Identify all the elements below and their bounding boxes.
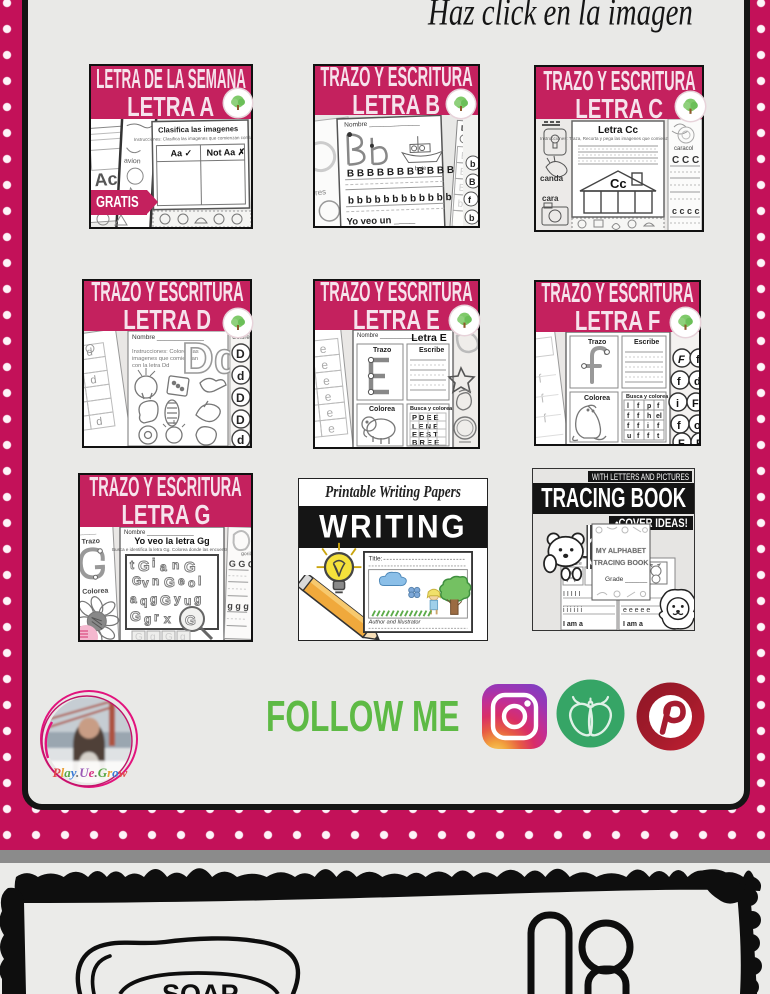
svg-text:g: g xyxy=(150,592,157,606)
svg-text:u: u xyxy=(184,594,191,608)
svg-text:D: D xyxy=(236,413,245,427)
svg-text:i: i xyxy=(152,556,155,570)
svg-text:Letra Cc: Letra Cc xyxy=(598,125,638,136)
svg-text:G: G xyxy=(185,612,196,628)
svg-text:g: g xyxy=(144,612,151,626)
svg-text:a: a xyxy=(160,560,167,574)
svg-text:G: G xyxy=(165,632,173,642)
svg-text:D: D xyxy=(236,391,245,405)
svg-text:r: r xyxy=(154,610,159,624)
svg-text:G G G G: G G G G xyxy=(229,559,251,570)
svg-text:G: G xyxy=(130,608,141,624)
svg-text:F: F xyxy=(678,438,685,446)
svg-text:Grade ______: Grade ______ xyxy=(605,576,647,583)
svg-text:res: res xyxy=(315,187,327,197)
svg-text:Trazo: Trazo xyxy=(373,347,391,354)
svg-text:con la letra Dd: con la letra Dd xyxy=(132,363,169,369)
svg-text:F: F xyxy=(692,398,699,410)
svg-text:G: G xyxy=(184,559,196,576)
svg-text:F: F xyxy=(696,438,699,446)
svg-text:g: g xyxy=(150,632,156,642)
svg-text:h: h xyxy=(647,413,651,420)
svg-text:TRACING BOOK: TRACING BOOK xyxy=(594,560,649,567)
svg-text:Title:: Title: xyxy=(369,555,383,562)
svg-text:n: n xyxy=(152,574,159,588)
svg-text:Trazo: Trazo xyxy=(81,538,100,546)
svg-text:l: l xyxy=(198,574,201,588)
svg-text:canda: canda xyxy=(540,174,564,183)
svg-text:B: B xyxy=(469,177,476,187)
svg-text:C C C: C C C xyxy=(672,155,699,166)
svg-text:Clasifica las imagenes: Clasifica las imagenes xyxy=(158,124,238,134)
svg-text:caracol: caracol xyxy=(674,146,693,152)
svg-text:avion: avion xyxy=(124,158,141,166)
svg-text:f: f xyxy=(677,420,681,432)
svg-text:Ac: Ac xyxy=(94,169,118,191)
svg-text:Escribe: Escribe xyxy=(634,339,659,346)
svg-text:el: el xyxy=(656,413,662,420)
svg-text:G: G xyxy=(160,592,171,608)
svg-text:D: D xyxy=(236,347,245,361)
svg-text:o: o xyxy=(188,576,195,590)
svg-text:a: a xyxy=(130,592,137,606)
svg-text:G: G xyxy=(164,574,175,590)
svg-text:i: i xyxy=(647,423,649,430)
svg-text:F: F xyxy=(678,354,685,366)
svg-text:b: b xyxy=(470,159,476,169)
svg-text:SOAP: SOAP xyxy=(162,979,239,994)
svg-text:c c c c: c c c c xyxy=(672,206,700,216)
svg-text:o: o xyxy=(694,420,699,432)
svg-text:B R E E: B R E E xyxy=(412,438,439,447)
svg-text:n: n xyxy=(172,558,179,572)
svg-text:Yo veo la letra Gg: Yo veo la letra Gg xyxy=(134,536,209,546)
svg-text:gorila: gorila xyxy=(241,551,251,557)
svg-text:q: q xyxy=(140,594,147,608)
svg-text:e e e e e: e e e e e xyxy=(623,607,650,614)
svg-text:v: v xyxy=(142,576,149,590)
svg-text:i: i xyxy=(676,398,679,410)
svg-text:Author and Illustrator: Author and Illustrator xyxy=(368,620,422,626)
svg-text:g: g xyxy=(180,632,186,642)
svg-text:d: d xyxy=(237,433,244,446)
svg-text:Colorea: Colorea xyxy=(584,395,610,402)
svg-text:I am a: I am a xyxy=(563,621,583,628)
svg-text:Not Aa ✗: Not Aa ✗ xyxy=(206,147,245,158)
svg-text:G: G xyxy=(132,574,141,588)
svg-text:G: G xyxy=(135,632,143,642)
svg-text:f: f xyxy=(696,354,699,366)
svg-text:MY ALPHABET: MY ALPHABET xyxy=(596,548,647,555)
svg-text:Busca y colorea: Busca y colorea xyxy=(410,406,453,412)
svg-text:Escribe: Escribe xyxy=(419,347,444,354)
svg-text:Colorea: Colorea xyxy=(82,588,108,596)
svg-text:Busca e identifica la letra Gg: Busca e identifica la letra Gg. Colorea … xyxy=(112,547,233,552)
svg-text:cara: cara xyxy=(542,194,559,203)
svg-text:Play.Ue.Grow: Play.Ue.Grow xyxy=(53,765,128,780)
svg-text:x: x xyxy=(164,612,171,626)
svg-text:g: g xyxy=(194,592,201,606)
svg-text:i i i i i i: i i i i i i xyxy=(563,607,583,614)
svg-text:Colorea: Colorea xyxy=(369,406,395,413)
svg-text:I I I I I: I I I I I xyxy=(563,591,581,598)
svg-text:d: d xyxy=(237,369,244,383)
svg-text:g g g g: g g g g xyxy=(227,601,251,612)
svg-text:b: b xyxy=(469,213,475,223)
svg-text:y: y xyxy=(174,592,181,606)
svg-text:Aa ✓: Aa ✓ xyxy=(170,148,192,158)
svg-text:Trazo: Trazo xyxy=(588,339,606,346)
svg-text:e: e xyxy=(178,574,185,588)
svg-text:Busca y colorea: Busca y colorea xyxy=(626,394,669,400)
svg-text:G: G xyxy=(138,558,150,575)
svg-text:Nombre ___________: Nombre ___________ xyxy=(357,333,417,339)
svg-text:Cc: Cc xyxy=(610,176,627,191)
svg-text:Letra E: Letra E xyxy=(411,332,447,344)
svg-text:I am a: I am a xyxy=(623,621,643,628)
svg-text:d: d xyxy=(694,376,699,388)
svg-text:u: u xyxy=(627,433,631,440)
svg-text:f: f xyxy=(677,376,681,388)
svg-text:l: l xyxy=(627,403,629,410)
svg-text:p: p xyxy=(647,403,651,410)
svg-text:t: t xyxy=(130,558,134,572)
